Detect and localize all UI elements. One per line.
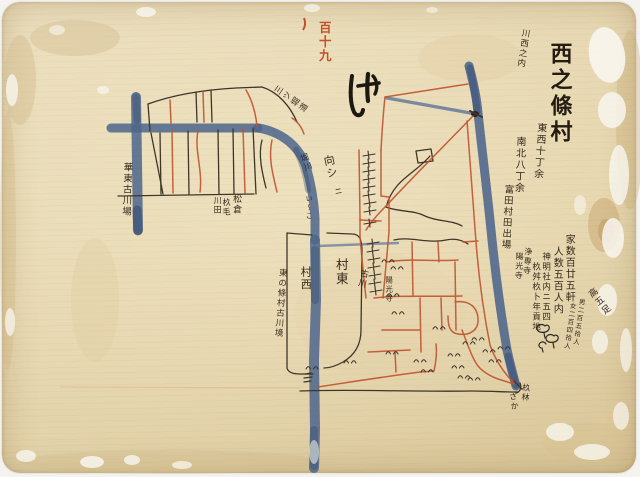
mukai-ni-label: ニ [333,186,343,197]
east-village-boundary-label: 東の條村古川境 [273,268,287,338]
old-river-label: 古川 [356,268,369,289]
temple-yokoji: 陽光寺 [514,252,523,281]
village-east-label: 村東 [334,258,347,286]
saka-label: さか [508,392,519,412]
kawada-label: 川田 [213,196,221,215]
tomita-field-label: 富田村田出場 [500,184,513,250]
sugike-label: 杦毛 [222,198,230,217]
label-layer: 百十九 川西之内 西之條村 東西十丁余 南北八丁余 家数百廿五軒 人数五百人内 … [0,0,640,477]
folio-number: 百十九 [317,21,330,63]
census-population: 人数五百人内 [551,246,561,315]
mukai-label: 向シ [322,154,338,181]
mitsubori-road-label: 三ツ堀道 [272,85,310,115]
old-river-bank-label: 華東古川場 [120,162,132,217]
shrine-note-2: 杦舛杦⼘年貢地 [531,262,540,332]
village-title: 西之條村 [547,42,569,146]
scanned-map-photo: 百十九 川西之内 西之條村 東西十丁余 南北八丁余 家数百廿五軒 人数五百人内 … [0,0,640,477]
grove-label: 杦林 [520,383,530,403]
census-houses: 家数百廿五軒 [563,234,573,303]
yield-note: 高五足 [585,287,612,317]
shrine-note-1: 神明社内ニ五四 [541,252,550,322]
extent-east-west: 東西十丁余 [531,122,545,180]
temple-site-label: 陽光寺 [385,276,393,303]
village-west-label: 村西 [300,266,311,291]
iriko-label: い〜こ [305,195,312,221]
title-region: 川西之内 [515,28,529,69]
matsukura-label: 松倉 [231,194,240,215]
horikawa-label: 堀川 [299,152,313,173]
